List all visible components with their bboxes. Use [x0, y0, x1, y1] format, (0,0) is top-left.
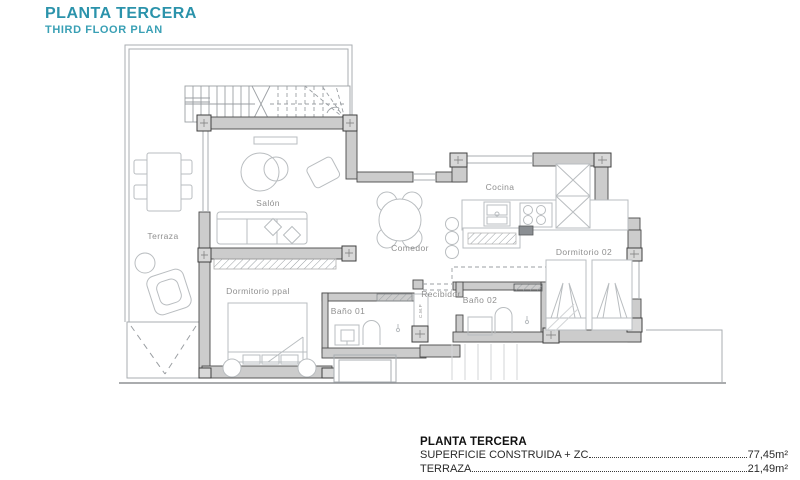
- bathroom-01-fixtures: [335, 321, 400, 346]
- room-label-bano-01: Baño 01: [331, 306, 365, 316]
- legend-row: TERRAZA 21,49m²: [420, 462, 788, 476]
- room-label-dormitorio-ppal: Dormitorio ppal: [226, 286, 290, 296]
- legend-title: PLANTA TERCERA: [420, 436, 788, 448]
- floor-plan-drawing: Terraza Salón Comedor Cocina Dormitorio …: [0, 0, 800, 480]
- toilet-icon: [495, 308, 512, 335]
- dining-table: [377, 192, 422, 248]
- legend-value: 77,45m²: [748, 448, 788, 462]
- room-label-comedor: Comedor: [391, 243, 429, 253]
- toilet-icon: [363, 321, 380, 346]
- tv-console-icon: [254, 137, 297, 144]
- room-label-terraza: Terraza: [147, 231, 178, 241]
- single-bed-icon: [546, 260, 586, 330]
- armchair-icon: [305, 156, 341, 189]
- rug-icon: [241, 153, 279, 191]
- plant-icon: [135, 253, 155, 273]
- double-bed-icon: [228, 303, 307, 362]
- room-label-cmp: C.M.P: [418, 304, 423, 318]
- room-label-dormitorio-02: Dormitorio 02: [556, 247, 612, 257]
- legend: PLANTA TERCERA SUPERFICIE CONSTRUIDA + Z…: [420, 436, 788, 476]
- nightstand-icon: [298, 359, 316, 377]
- single-bed-icon: [592, 260, 632, 330]
- dotted-leader: [472, 471, 746, 472]
- room-label-recibidor: Recibidor: [421, 289, 461, 299]
- bedroom-02-furniture: [546, 260, 632, 333]
- dotted-leader: [589, 457, 746, 458]
- round-table-icon: [379, 199, 421, 241]
- stool-icon: [446, 246, 459, 259]
- lounge-chair-icon: [145, 267, 194, 317]
- room-label-cocina: Cocina: [486, 182, 515, 192]
- bathroom-02-fixtures: [468, 308, 529, 336]
- legend-value: 21,49m²: [748, 462, 788, 476]
- legend-label: SUPERFICIE CONSTRUIDA + ZC: [420, 448, 588, 462]
- room-label-salon: Salón: [256, 198, 280, 208]
- nightstand-icon: [223, 359, 241, 377]
- room-label-bano-02: Baño 02: [463, 295, 497, 305]
- living-room-furniture: [217, 137, 341, 244]
- legend-row: SUPERFICIE CONSTRUIDA + ZC 77,45m²: [420, 448, 788, 462]
- legend-label: TERRAZA: [420, 462, 471, 476]
- stool-icon: [446, 218, 459, 231]
- stool-icon: [446, 232, 459, 245]
